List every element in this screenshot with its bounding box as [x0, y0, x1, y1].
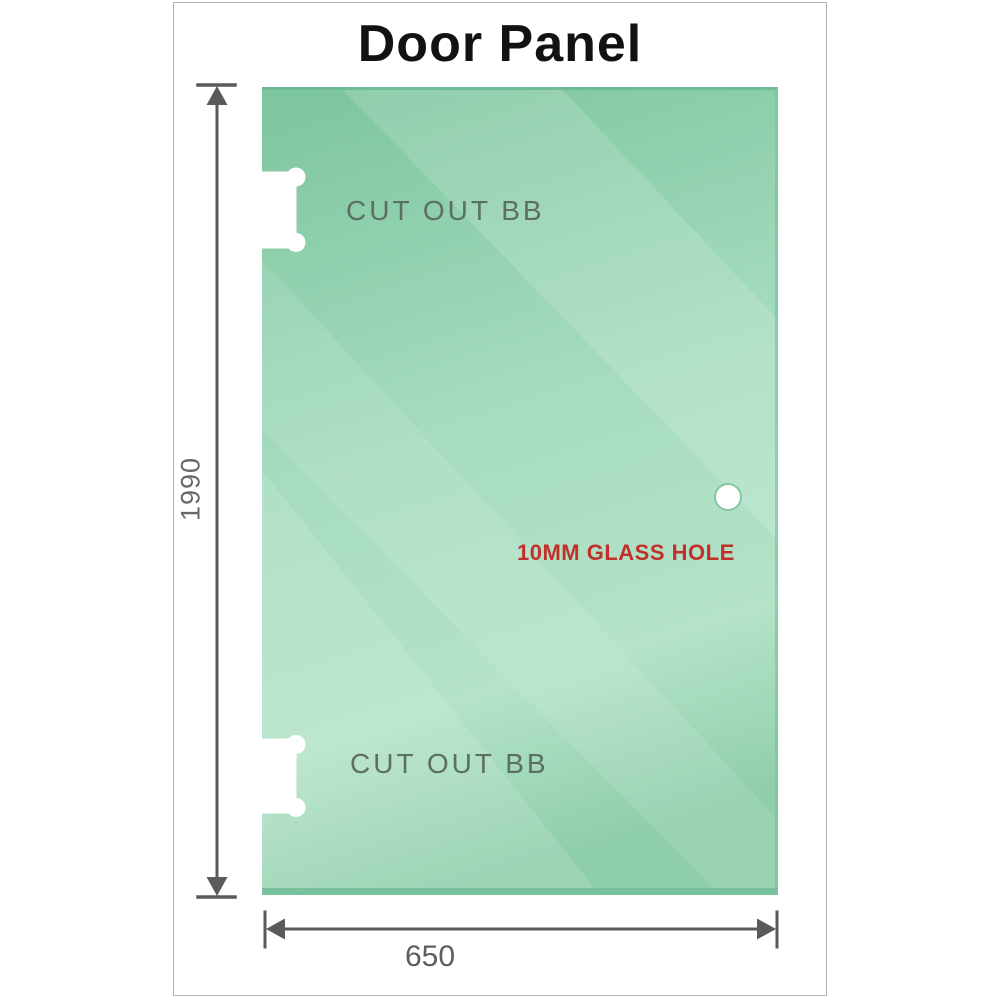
height-dimension-label: 1990	[176, 457, 207, 521]
glass-top-edge	[262, 87, 778, 90]
top-cutout-label: CUT OUT BB	[346, 195, 545, 227]
diagram-title: Door Panel	[173, 14, 827, 74]
bottom-cutout-label: CUT OUT BB	[350, 748, 549, 780]
door-panel-drawing	[0, 0, 1000, 1000]
glass-hole	[715, 484, 741, 510]
diagram-canvas: Door Panel 1990 CUT OUT BB CUT OUT BB 10…	[0, 0, 1000, 1000]
glass-hole-label: 10MM GLASS HOLE	[517, 540, 735, 566]
width-dimension-label: 650	[405, 940, 455, 974]
glass-right-edge	[775, 87, 778, 895]
glass-bottom-edge	[262, 888, 778, 895]
width-dimension-arrow	[265, 912, 777, 947]
